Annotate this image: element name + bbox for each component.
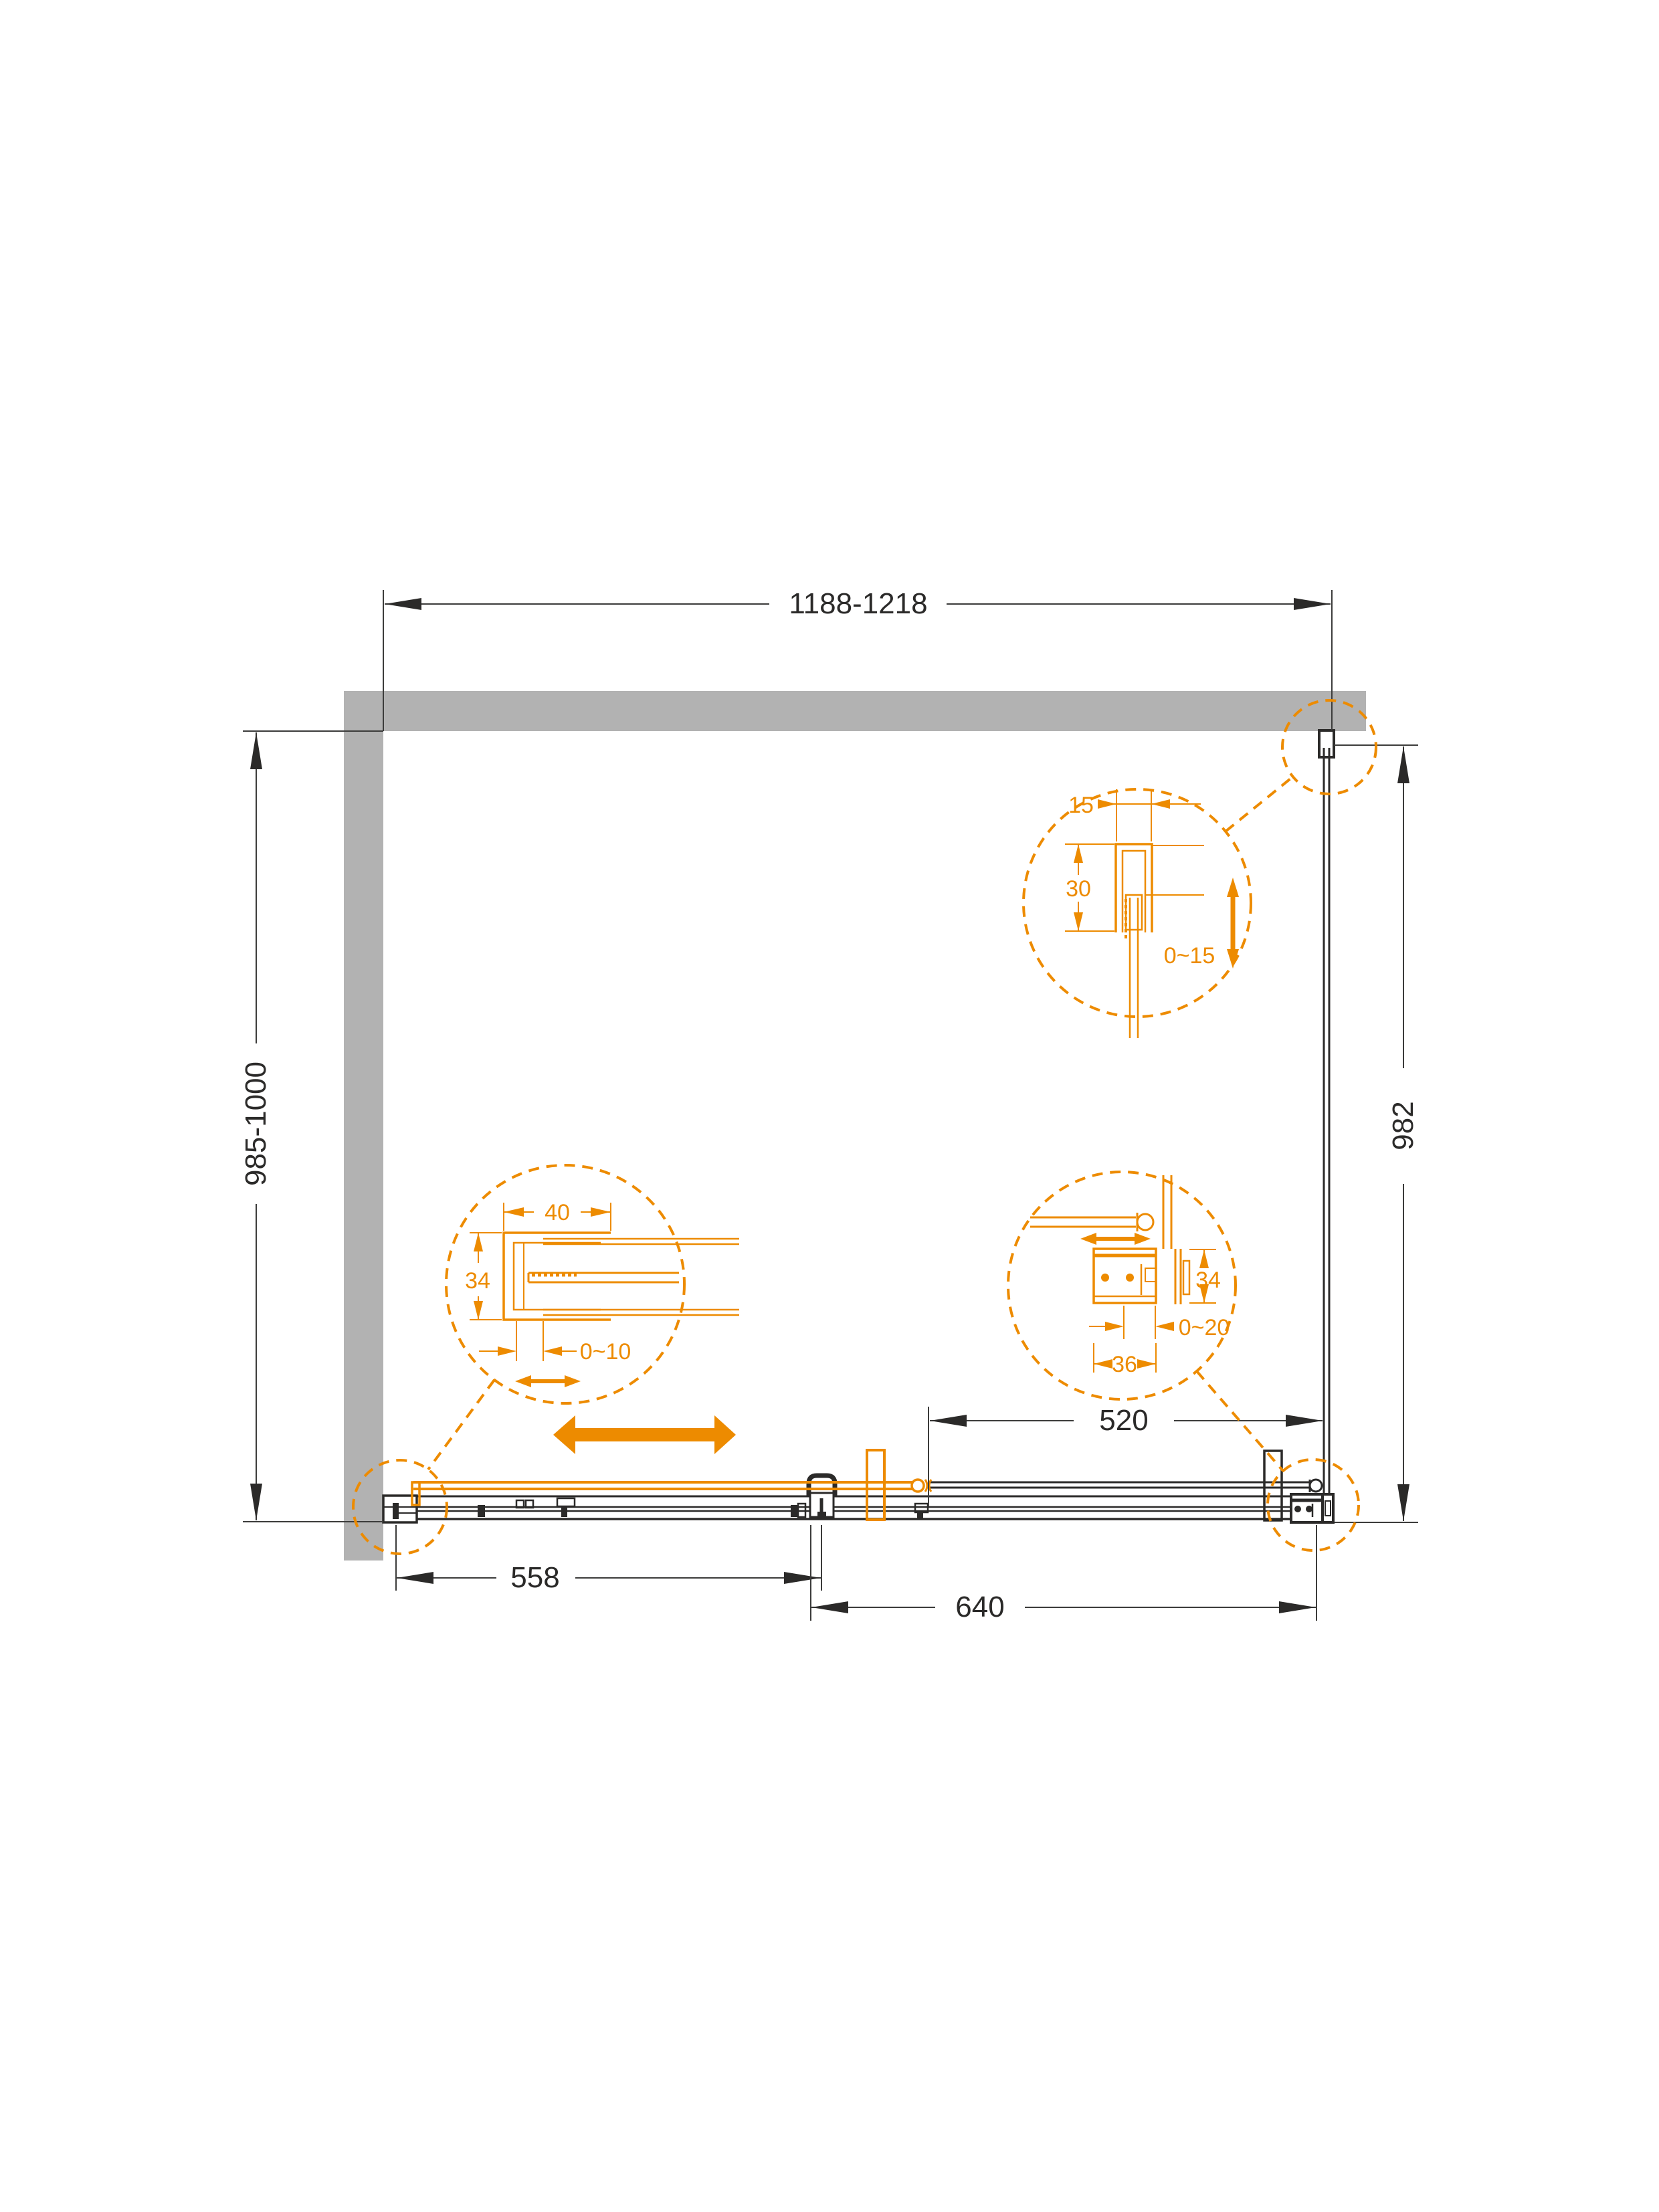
end-bracket xyxy=(1291,1494,1333,1522)
dim-height-left-label: 985-1000 xyxy=(239,1062,272,1186)
detail-left-height-label: 34 xyxy=(465,1268,490,1294)
dimension-door-558 xyxy=(396,1525,821,1591)
dim-door-label: 558 xyxy=(510,1561,559,1594)
detail-tr-width-label: 15 xyxy=(1068,793,1094,818)
technical-drawing-page: 1188-1218 985-1000 982 558 640 xyxy=(0,0,1659,2212)
sliding-door-panel xyxy=(412,1480,931,1505)
bottom-track xyxy=(383,1480,1333,1519)
callout-circles xyxy=(353,700,1376,1554)
leader-left xyxy=(428,1380,494,1470)
dim-height-right-label: 982 xyxy=(1387,1101,1420,1150)
leader-top-right xyxy=(1226,777,1293,831)
detail-tr-range-label: 0~15 xyxy=(1164,943,1215,969)
detail-left-width-label: 40 xyxy=(545,1200,570,1225)
detail-tr-depth-label: 30 xyxy=(1066,876,1091,902)
dim-width-label: 1188-1218 xyxy=(789,587,927,620)
door-handle xyxy=(867,1450,884,1520)
track-guides xyxy=(478,1498,928,1518)
slide-direction-arrow xyxy=(553,1415,736,1454)
detail-left-range-label: 0~10 xyxy=(580,1339,631,1365)
detail-right-height-label: 34 xyxy=(1195,1268,1221,1293)
dimension-fixed-640 xyxy=(811,1525,1316,1621)
detail-right-content xyxy=(1030,1175,1216,1373)
dim-opening-label: 520 xyxy=(1099,1404,1148,1437)
fixed-side-panel xyxy=(1319,730,1334,1494)
side-wall xyxy=(344,691,383,1561)
detail-top-right-content xyxy=(1065,789,1239,1038)
back-wall xyxy=(344,691,1366,731)
shower-enclosure-plan-drawing: 1188-1218 985-1000 982 558 640 xyxy=(0,0,1659,2212)
detail-right-range-label: 0~20 xyxy=(1179,1315,1230,1340)
detail-right-width-label: 36 xyxy=(1112,1352,1137,1377)
dim-fixed-label: 640 xyxy=(955,1591,1004,1623)
